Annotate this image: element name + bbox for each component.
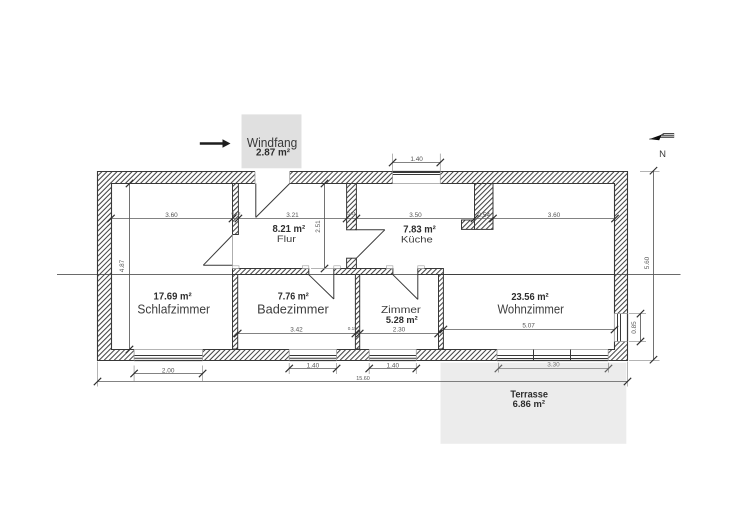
svg-text:1.40: 1.40	[307, 362, 320, 369]
svg-text:3.50: 3.50	[409, 212, 422, 219]
svg-text:5.28 m²: 5.28 m²	[386, 315, 418, 325]
svg-text:7.76 m²: 7.76 m²	[278, 292, 309, 303]
svg-text:0.54: 0.54	[478, 212, 491, 219]
svg-text:15.60: 15.60	[356, 376, 370, 382]
svg-text:17.69 m²: 17.69 m²	[154, 292, 193, 303]
svg-text:N: N	[659, 149, 666, 160]
svg-text:Wohnzimmer: Wohnzimmer	[497, 302, 564, 316]
svg-text:4.87: 4.87	[119, 259, 126, 272]
svg-text:1.40: 1.40	[387, 362, 400, 369]
svg-text:0.85: 0.85	[631, 321, 638, 334]
svg-text:2.00: 2.00	[162, 367, 175, 374]
svg-text:0.15: 0.15	[348, 326, 357, 332]
svg-text:3.21: 3.21	[286, 212, 299, 219]
svg-text:1.40: 1.40	[410, 156, 423, 163]
svg-text:Flur: Flur	[277, 233, 296, 244]
svg-text:3.42: 3.42	[290, 327, 303, 334]
svg-text:Badezimmer: Badezimmer	[257, 303, 329, 317]
svg-text:6.86 m²: 6.86 m²	[513, 399, 545, 409]
svg-text:5.60: 5.60	[644, 256, 651, 269]
svg-text:5.07: 5.07	[522, 323, 535, 330]
svg-text:2.51: 2.51	[315, 220, 322, 233]
svg-text:Küche: Küche	[401, 233, 433, 244]
svg-text:3.60: 3.60	[548, 212, 561, 219]
svg-text:0.31: 0.31	[347, 211, 356, 217]
svg-text:3.60: 3.60	[165, 212, 178, 219]
svg-text:2.87 m²: 2.87 m²	[256, 147, 291, 158]
svg-text:0.18: 0.18	[232, 211, 241, 217]
svg-text:Schlafzimmer: Schlafzimmer	[137, 302, 210, 316]
svg-text:2.30: 2.30	[393, 327, 406, 334]
svg-text:3.30: 3.30	[547, 362, 560, 369]
